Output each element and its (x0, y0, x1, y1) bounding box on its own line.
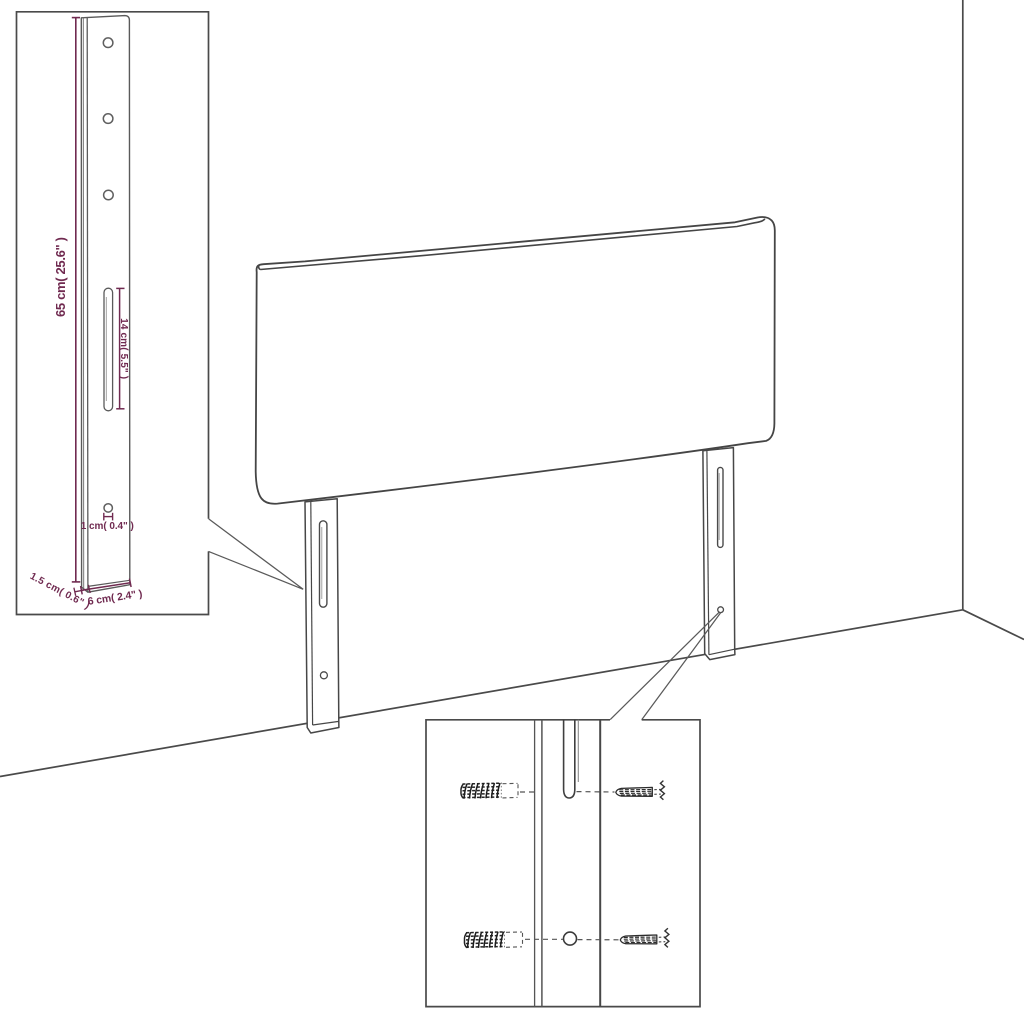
svg-text:1 cm( 0.4" ): 1 cm( 0.4" ) (81, 521, 134, 532)
svg-text:14 cm( 5.5" ): 14 cm( 5.5" ) (118, 318, 129, 379)
svg-text:65 cm( 25.6" ): 65 cm( 25.6" ) (53, 237, 68, 317)
